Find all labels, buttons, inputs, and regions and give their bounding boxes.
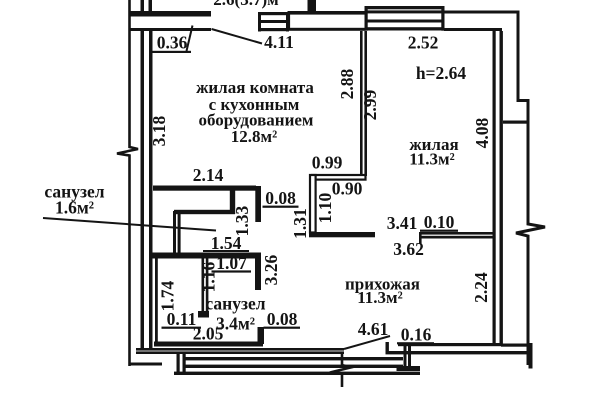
svg-text:0.16: 0.16 bbox=[401, 325, 432, 345]
svg-text:12.8м²: 12.8м² bbox=[231, 127, 277, 146]
svg-text:2.05: 2.05 bbox=[193, 324, 224, 344]
svg-text:санузел: санузел bbox=[205, 294, 265, 314]
svg-text:1.10: 1.10 bbox=[315, 192, 335, 223]
svg-text:11.3м²: 11.3м² bbox=[357, 288, 403, 307]
svg-text:4.08: 4.08 bbox=[472, 117, 492, 148]
svg-text:3.62: 3.62 bbox=[393, 239, 424, 259]
svg-text:2.24: 2.24 bbox=[471, 272, 491, 303]
svg-text:2.52: 2.52 bbox=[408, 33, 439, 53]
svg-text:0.90: 0.90 bbox=[332, 179, 363, 199]
svg-text:4.11: 4.11 bbox=[264, 32, 294, 52]
svg-text:h=2.64: h=2.64 bbox=[416, 63, 467, 83]
svg-text:2.6(3.7)м: 2.6(3.7)м bbox=[213, 0, 279, 9]
svg-text:3.26: 3.26 bbox=[261, 254, 281, 285]
svg-text:1.6м²: 1.6м² bbox=[55, 198, 94, 218]
svg-text:2.14: 2.14 bbox=[193, 165, 224, 185]
svg-text:3.18: 3.18 bbox=[149, 115, 169, 146]
svg-text:11.3м²: 11.3м² bbox=[409, 150, 455, 169]
svg-text:3.41: 3.41 bbox=[387, 213, 418, 233]
svg-text:0.08: 0.08 bbox=[267, 309, 298, 329]
svg-text:2.88: 2.88 bbox=[337, 68, 357, 99]
svg-text:0.36: 0.36 bbox=[157, 33, 188, 53]
svg-text:1.07: 1.07 bbox=[216, 253, 247, 273]
svg-text:1.54: 1.54 bbox=[211, 233, 242, 253]
svg-text:4.61: 4.61 bbox=[358, 319, 389, 339]
svg-text:2.99: 2.99 bbox=[360, 89, 380, 120]
svg-text:0.10: 0.10 bbox=[424, 212, 455, 232]
svg-text:0.99: 0.99 bbox=[312, 153, 343, 173]
svg-text:0.08: 0.08 bbox=[265, 188, 296, 208]
svg-text:1.31: 1.31 bbox=[290, 208, 310, 239]
svg-text:1.74: 1.74 bbox=[158, 280, 178, 311]
svg-text:1.33: 1.33 bbox=[232, 205, 252, 236]
